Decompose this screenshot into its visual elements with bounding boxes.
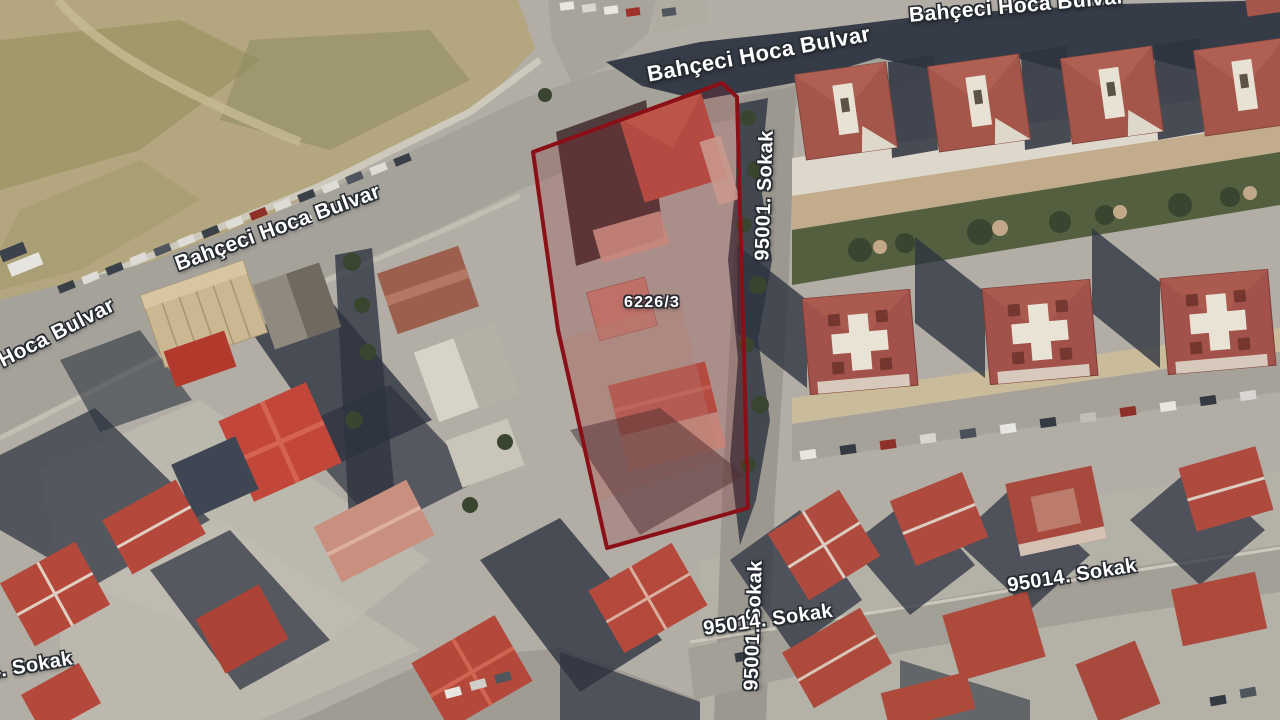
map-canvas[interactable]: Bahçeci Hoca Bulvar Bahçeci Hoca Bulvar … (0, 0, 1280, 720)
satellite-imagery (0, 0, 1280, 720)
